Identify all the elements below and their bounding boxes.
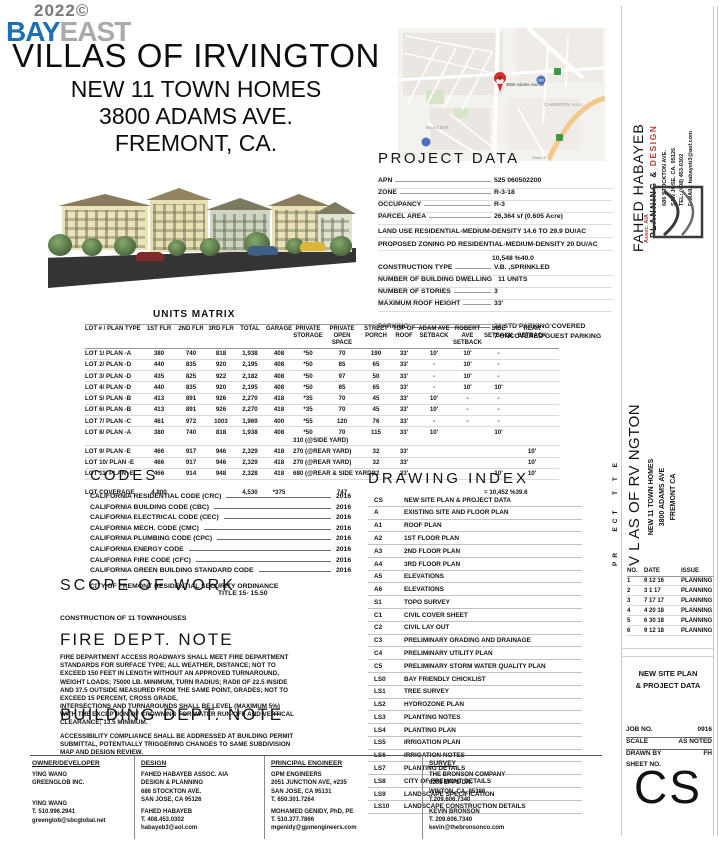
cell: 33' xyxy=(391,418,417,426)
leader-line xyxy=(454,291,491,293)
field-label: CONSTRUCTION TYPE xyxy=(378,264,452,271)
leader-line xyxy=(189,550,331,551)
info-row: SCALE AS NOTED xyxy=(626,738,712,750)
cell: *50 xyxy=(293,373,323,381)
field-label: ZONE xyxy=(378,189,397,196)
units-matrix-row: LOT 9/ PLAN -E 466 917 946 2,329 418 270… xyxy=(85,446,559,457)
code-name: CALIFORNIA FIRE CODE (CFC) xyxy=(90,557,191,564)
field-label: MAXIMUM ROOF HEIGHT xyxy=(378,300,460,307)
cell: 45 xyxy=(361,395,391,403)
sheet-name: PRELIMINARY GRADING AND DRAINAGE xyxy=(404,637,582,644)
fire-note-heading: FIRE DEPT. NOTE xyxy=(60,630,365,650)
car-graphic xyxy=(136,252,164,261)
code-year: 2016 xyxy=(336,493,362,500)
project-data-row: NUMBER OF STORIES 3 xyxy=(378,288,612,300)
cell: 115 xyxy=(361,429,391,437)
code-year: 2016 xyxy=(336,535,362,542)
cell: - xyxy=(484,373,513,381)
units-matrix-row: LOT 4/ PLAN -D 440 835 920 2,195 408 *50… xyxy=(85,382,559,393)
contact-role: SURVEY xyxy=(429,760,596,767)
leader-line xyxy=(224,518,331,519)
column-header: TOP OF ROOF xyxy=(391,326,417,347)
field-value: 3 xyxy=(494,288,612,295)
cell: 2,195 xyxy=(235,361,265,369)
info-value: AS NOTED xyxy=(678,738,712,745)
cell: 972 xyxy=(175,418,207,426)
sheet-name: IRRIGATION PLAN xyxy=(404,739,582,746)
rev-issue: PLANNING xyxy=(681,588,713,594)
cell: 740 xyxy=(175,429,207,437)
contact-column: DESIGN FAHED HABAYEB ASSOC. AIA DESIGN &… xyxy=(134,756,264,839)
cell: - xyxy=(484,418,513,426)
cell: 10' xyxy=(451,373,484,381)
field-label: OCCUPANCY xyxy=(378,201,421,208)
rev-issue: PLANNING xyxy=(681,618,713,624)
rev-no: 4 xyxy=(627,608,644,614)
titleblock-project-name: V L AS OF RV NGTON xyxy=(626,416,643,566)
rev-issue: PLANNING xyxy=(681,578,713,584)
map-highway-shield xyxy=(422,138,431,147)
scope-body: CONSTRUCTION OF 11 TOWNHOUSES xyxy=(60,615,360,622)
cell: 97 xyxy=(323,373,361,381)
field-value: 11 UNITS xyxy=(498,276,612,283)
cell: - xyxy=(417,373,451,381)
contact-firm: YING WANG GREENGLOB INC. xyxy=(32,771,128,797)
drawing-index-row: A1 ROOF PLAN xyxy=(368,520,582,533)
drawing-index-row: LS2 HYDROZONE PLAN xyxy=(368,699,582,712)
drawing-index-row: A6 ELEVATIONS xyxy=(368,583,582,596)
cell: 33' xyxy=(391,459,417,467)
code-year: 2016 xyxy=(336,504,362,511)
cell: 408 xyxy=(265,373,293,381)
drawing-index-row: C3 PRELIMINARY GRADING AND DRAINAGE xyxy=(368,635,582,648)
cell: 45 xyxy=(361,406,391,414)
codes-heading: CODES xyxy=(90,467,362,484)
revision-row: 3 7 17 17 PLANNING xyxy=(627,596,713,606)
cell: 120 xyxy=(323,418,361,426)
rev-issue: PLANNING xyxy=(681,598,713,604)
cell: 32 xyxy=(361,448,391,456)
drawing-index-row: LS0 BAY FRIENDLY CHICKLIST xyxy=(368,673,582,686)
project-data-row: MAXIMUM ROOF HEIGHT 33' xyxy=(378,300,612,312)
drawing-index-row: LS1 TREE SURVEY xyxy=(368,686,582,699)
revision-row: 4 4 20 18 PLANNING xyxy=(627,606,713,616)
cell: 835 xyxy=(175,384,207,392)
cell: 33' xyxy=(391,361,417,369)
sheet-code: C5 xyxy=(368,663,404,670)
cell: 10' xyxy=(417,429,451,437)
designer-tagline-accent: DESIGN xyxy=(648,125,658,167)
units-matrix-heading: UNITS MATRIX xyxy=(153,309,235,320)
tree-graphic xyxy=(114,236,136,256)
code-row: CALIFORNIA MECH. CODE (CMC) 2016 xyxy=(90,525,362,536)
cell: 1,969 xyxy=(235,418,265,426)
project-title-label: PR ECT T T E xyxy=(612,416,619,566)
units-matrix-row: LOT 1/ PLAN -A 380 740 818 1,938 408 *50… xyxy=(85,349,559,360)
column-header: STREET PORCH xyxy=(361,326,391,347)
sheet-code: C2 xyxy=(368,624,404,631)
project-data-row: APN 525 060502200 xyxy=(378,177,612,189)
sheet-code: LS4 xyxy=(368,727,404,734)
cell: 946 xyxy=(207,459,235,467)
cell: 466 xyxy=(143,459,175,467)
sheet-name: ROOF PLAN xyxy=(404,522,582,529)
cell: 408 xyxy=(265,361,293,369)
cell: - xyxy=(484,361,513,369)
map-graphic: 680 3800 Adams Avenue CAMERON HILL BLACO… xyxy=(398,28,605,161)
field-value: 33' xyxy=(494,300,612,307)
leader-line xyxy=(226,497,331,498)
code-row: CALIFORNIA RESIDENTIAL CODE (CRC) 2016 xyxy=(90,493,362,504)
cell: 270 (@REAR YARD) xyxy=(293,448,323,456)
sheet-name: ELEVATIONS xyxy=(404,573,582,580)
cell: 85 xyxy=(323,384,361,392)
cell: 33' xyxy=(391,395,417,403)
cell: *35 xyxy=(293,395,323,403)
code-name: CALIFORNIA GREEN BUILDING STANDARD CODE xyxy=(90,567,254,574)
sheet-name: PRELIMINARY UTILITY PLAN xyxy=(404,650,582,657)
cell: - xyxy=(484,395,513,403)
sheet-name: TREE SURVEY xyxy=(404,688,582,695)
units-matrix-row: LOT 6/ PLAN -B 413 891 926 2,270 418 *35… xyxy=(85,405,559,416)
cell: 65 xyxy=(361,361,391,369)
cell-lot: LOT 10/ PLAN -E xyxy=(85,459,143,467)
leader-line xyxy=(395,180,491,182)
leader-line xyxy=(400,192,491,194)
column-header: PRIVATE STORAGE xyxy=(293,326,323,347)
cell: 408 xyxy=(265,429,293,437)
land-use-line: LAND USE RESIDENTIAL-MEDIUM-DENSITY 14.6… xyxy=(378,225,612,238)
cell: 10' xyxy=(417,350,451,358)
titleblock-project: PR ECT T T E V L AS OF RV NGTON NEW 11 T… xyxy=(612,416,694,566)
drawing-index-row: A EXISTING SITE AND FLOOR PLAN xyxy=(368,507,582,520)
field-value: R-3 xyxy=(494,201,612,208)
revision-table: NO. DATE ISSUE 1 9 12 16 PLANNING 2 3 1 … xyxy=(627,568,713,636)
rev-date: 9 12 16 xyxy=(644,578,681,584)
info-label: SCALE xyxy=(626,738,648,745)
drawing-index-row: S1 TOPO SURVEY xyxy=(368,596,582,609)
rev-no: 6 xyxy=(627,628,644,634)
cell: 891 xyxy=(175,406,207,414)
cell: *50 xyxy=(293,350,323,358)
leader-line xyxy=(217,539,331,540)
cell: 740 xyxy=(175,350,207,358)
cell: 2,270 xyxy=(235,395,265,403)
info-value: 0916 xyxy=(698,726,712,733)
cell: - xyxy=(451,418,484,426)
revision-row: 1 9 12 16 PLANNING xyxy=(627,577,713,587)
cell: 10' xyxy=(513,448,551,456)
cell: 10' xyxy=(417,395,451,403)
drawing-index-row: A4 3RD FLOOR PLAN xyxy=(368,558,582,571)
building-note-body: ACCESSIBILITY COMPLIANCE SHALL BE ADDRES… xyxy=(60,733,365,758)
rev-no: 5 xyxy=(627,618,644,624)
code-row: CALIFORNIA BUILDING CODE (CBC) 2016 xyxy=(90,504,362,515)
sheet-code: A5 xyxy=(368,573,404,580)
cell-lot: LOT 6/ PLAN -B xyxy=(85,406,143,414)
code-row: CALIFORNIA FIRE CODE (CFC) 2016 xyxy=(90,557,362,568)
code-name: CALIFORNIA BUILDING CODE (CBC) xyxy=(90,504,209,511)
cell: 380 xyxy=(143,429,175,437)
sheet-name: PRELIMINARY STORM WATER QUALITY PLAN xyxy=(404,663,582,670)
rev-no: 1 xyxy=(627,578,644,584)
cell: 2,329 xyxy=(235,459,265,467)
map-label-cameron-hill: CAMERON HILL xyxy=(544,102,584,107)
cell: 33' xyxy=(391,429,417,437)
cell: 818 xyxy=(207,350,235,358)
column-header: REAR SETBACK xyxy=(513,326,551,347)
field-label: NUMBER OF STORIES xyxy=(378,288,451,295)
cell: 408 xyxy=(265,384,293,392)
map-pin-label: 3800 Adams Avenue xyxy=(506,82,545,87)
cell: 270 (@REAR YARD) xyxy=(293,459,323,467)
leader-line xyxy=(429,216,491,218)
column-header: ROBERT AVE SETBACK xyxy=(451,326,484,347)
code-name: CALIFORNIA MECH. CODE (CMC) xyxy=(90,525,199,532)
column-header: 3RD FLR xyxy=(207,326,235,347)
cell: 10' xyxy=(484,429,513,437)
sheet-code: A3 xyxy=(368,548,404,555)
cell: 440 xyxy=(143,384,175,392)
cell: 926 xyxy=(207,406,235,414)
map-green-badge xyxy=(556,134,563,141)
sheet-code: A xyxy=(368,509,404,516)
cell: 70 xyxy=(323,406,361,414)
code-row: CALIFORNIA ELECTRICAL CODE (CEC) 2016 xyxy=(90,514,362,525)
rev-no: 2 xyxy=(627,588,644,594)
rev-no: 3 xyxy=(627,598,644,604)
rev-col-issue: ISSUE xyxy=(681,568,713,574)
leader-line xyxy=(455,267,491,269)
sheet-code: LS2 xyxy=(368,701,404,708)
cell: 2,270 xyxy=(235,406,265,414)
sheet-name: 3RD FLOOR PLAN xyxy=(404,561,582,568)
column-header: GARAGE xyxy=(265,326,293,347)
drawing-index-row: A5 ELEVATIONS xyxy=(368,571,582,584)
sheet-name: CIVIL LAY OUT xyxy=(404,624,582,631)
tree-graphic xyxy=(200,238,220,256)
cell: 400 xyxy=(265,418,293,426)
cell: 440 xyxy=(143,361,175,369)
cell: 891 xyxy=(175,395,207,403)
contact-role: PRINCIPAL ENGINEER xyxy=(271,760,416,767)
cell: 920 xyxy=(207,384,235,392)
drawing-index-row: LS5 IRRIGATION PLAN xyxy=(368,737,582,750)
cell: 920 xyxy=(207,361,235,369)
sheet-name: PLANTING PLAN xyxy=(404,727,582,734)
contacts-table: OWNER/DEVELOPER YING WANG GREENGLOB INC.… xyxy=(30,755,602,839)
column-header: 1ST FLR xyxy=(143,326,175,347)
cell-lot: LOT 1/ PLAN -A xyxy=(85,350,143,358)
cell: 835 xyxy=(175,361,207,369)
sheet-edge-border xyxy=(717,6,718,836)
contact-role: OWNER/DEVELOPER xyxy=(32,760,128,767)
code-name: CALIFORNIA RESIDENTIAL CODE (CRC) xyxy=(90,493,221,500)
code-row: CALIFORNIA ENERGY CODE 2016 xyxy=(90,546,362,557)
column-header: 2ND FLR xyxy=(175,326,207,347)
info-label: DRAWN BY xyxy=(626,750,661,757)
cell: 10' xyxy=(451,384,484,392)
code-row: CALIFORNIA PLUMBING CODE (CPC) 2016 xyxy=(90,535,362,546)
cell: *55 xyxy=(293,418,323,426)
cell: 408 xyxy=(265,350,293,358)
sheet-code: A4 xyxy=(368,561,404,568)
sheet-number: CS xyxy=(622,760,714,814)
building-dept-note-section: BUILDING DEPT. NOTE ACCESSIBILITY COMPLI… xyxy=(60,705,365,758)
tree-graphic xyxy=(82,238,102,256)
leader-line xyxy=(196,561,331,562)
project-data-row: OCCUPANCY R-3 xyxy=(378,201,612,213)
scope-heading: SCOPE OF WORK xyxy=(60,577,360,595)
rev-date: 6 30 18 xyxy=(644,618,681,624)
cell: *35 xyxy=(293,406,323,414)
field-value: R-3-18 xyxy=(494,189,612,196)
cell-lot: LOT 4/ PLAN -D xyxy=(85,384,143,392)
cell: 33' xyxy=(391,406,417,414)
cover-sheet: 2022© BAYEAST VILLAS OF IRVINGTON NEW 11… xyxy=(0,0,720,843)
cell: - xyxy=(417,384,451,392)
cell: 10' xyxy=(417,406,451,414)
cell: 33' xyxy=(391,448,417,456)
project-data-heading: PROJECT DATA xyxy=(378,150,612,167)
field-label: APN xyxy=(378,177,392,184)
cell: 2,329 xyxy=(235,448,265,456)
cell: 435 xyxy=(143,373,175,381)
cell: 65 xyxy=(361,384,391,392)
cell: 926 xyxy=(207,395,235,403)
contact-person: KEVIN BRONSON T. 209.606.7340 kevin@theb… xyxy=(429,808,596,833)
sheet-name: NEW SITE PLAN & PROJECT DATA xyxy=(404,497,582,504)
cell-lot: LOT 2/ PLAN -D xyxy=(85,361,143,369)
contact-column: OWNER/DEVELOPER YING WANG GREENGLOB INC.… xyxy=(30,756,134,839)
cell: 10' xyxy=(451,361,484,369)
column-header: TOTAL xyxy=(235,326,265,347)
rev-issue: PLANNING xyxy=(681,608,713,614)
units-matrix-row: LOT 8/ PLAN -A 380 740 818 1,938 408 *50… xyxy=(85,427,559,446)
field-label: NUMBER OF BUILDING DWELLING xyxy=(378,276,492,283)
cell: 461 xyxy=(143,418,175,426)
units-matrix-row: LOT 2/ PLAN -D 440 835 920 2,195 408 *50… xyxy=(85,360,559,371)
project-data-row: NUMBER OF BUILDING DWELLING 11 UNITS xyxy=(378,276,612,288)
building-rendering xyxy=(48,186,356,288)
car-graphic xyxy=(300,242,326,251)
sheet-name: BAY FRIENDLY CHICKLIST xyxy=(404,676,582,683)
tree-graphic xyxy=(168,240,186,256)
cell: - xyxy=(484,406,513,414)
contact-person: MOHAMED GENIDY, PhD, PE T. 510.377.7866 … xyxy=(271,808,416,833)
cell: 1003 xyxy=(207,418,235,426)
cell: 70 xyxy=(323,350,361,358)
rev-date: 4 20 18 xyxy=(644,608,681,614)
project-subtitle: NEW 11 TOWN HOMES xyxy=(0,76,392,103)
cell: - xyxy=(417,361,451,369)
cell: 917 xyxy=(175,459,207,467)
cell: 33' xyxy=(391,384,417,392)
cell: *50 xyxy=(293,361,323,369)
cell: 70 xyxy=(323,429,361,437)
contact-role: DESIGN xyxy=(141,760,258,767)
project-name: VILLAS OF IRVINGTON xyxy=(0,36,392,76)
sheet-code: CS xyxy=(368,497,404,504)
project-data-row: CONSTRUCTION TYPE V.B. ,SPRINKLED xyxy=(378,264,612,276)
cell: 10' xyxy=(484,384,513,392)
drawing-index-row: C5 PRELIMINARY STORM WATER QUALITY PLAN xyxy=(368,660,582,673)
drawing-index-row: A2 1ST FLOOR PLAN xyxy=(368,532,582,545)
rev-date: 9 12 18 xyxy=(644,628,681,634)
contact-person: YING WANG T. 510.996.2941 greenglob@sbcg… xyxy=(32,800,128,825)
sheet-code: A2 xyxy=(368,535,404,542)
sheet-code: C4 xyxy=(368,650,404,657)
code-name: CALIFORNIA ELECTRICAL CODE (CEC) xyxy=(90,514,219,521)
tree-graphic xyxy=(48,234,72,256)
revision-row: 2 3 1 17 PLANNING xyxy=(627,586,713,596)
cell: 70 xyxy=(323,395,361,403)
titleblock-project-address: NEW 11 TOWN HOMES 3800 ADAMS AVE FREMONT… xyxy=(646,438,680,556)
contact-person: FAHED HABAYEB T. 408.453.0302 habayeb3@a… xyxy=(141,808,258,833)
cell: *50 xyxy=(293,384,323,392)
cell: 946 xyxy=(207,448,235,456)
map-label-blacow: BLACOW xyxy=(426,125,449,130)
car-graphic xyxy=(248,246,278,255)
drawing-index-row: C2 CIVIL LAY OUT xyxy=(368,622,582,635)
field-value: V.B. ,SPRINKLED xyxy=(494,264,612,271)
units-matrix-row: LOT 7/ PLAN -C 461 972 1003 1,969 400 *5… xyxy=(85,416,559,427)
cell: 1,938 xyxy=(235,350,265,358)
cell: 190 xyxy=(361,350,391,358)
column-header: PRIVATE OPEN SPACE xyxy=(323,326,361,347)
cell-lot: LOT 5/ PLAN -B xyxy=(85,395,143,403)
cell-lot: LOT 7/ PLAN -C xyxy=(85,418,143,426)
sheet-code: LS5 xyxy=(368,739,404,746)
building-note-heading: BUILDING DEPT. NOTE xyxy=(60,705,365,725)
cell: 413 xyxy=(143,406,175,414)
field-value: 26,364 sf (0.605 Acre) xyxy=(494,213,612,220)
rev-date: 3 1 17 xyxy=(644,588,681,594)
leader-line xyxy=(259,571,332,572)
rev-col-date: DATE xyxy=(644,568,681,574)
cell: 33' xyxy=(391,373,417,381)
cell: 380 xyxy=(143,350,175,358)
project-data-section: PROJECT DATA APN 525 060502200 ZONE R-3-… xyxy=(378,150,612,342)
code-name: CALIFORNIA ENERGY CODE xyxy=(90,546,184,553)
leader-line xyxy=(204,529,331,530)
sheet-code: LS1 xyxy=(368,688,404,695)
code-year: 2016 xyxy=(336,546,362,553)
titleblock-divider xyxy=(622,656,714,657)
cell: 917 xyxy=(175,448,207,456)
sheet-code: A6 xyxy=(368,586,404,593)
sheet-name: PLANTING NOTES xyxy=(404,714,582,721)
cell: 10' xyxy=(451,350,484,358)
project-data-row: PARCEL AREA 26,364 sf (0.605 Acre) xyxy=(378,213,612,225)
cell: - xyxy=(451,395,484,403)
cell: 922 xyxy=(207,373,235,381)
revision-header: NO. DATE ISSUE xyxy=(627,568,713,577)
cell-lot: LOT 8/ PLAN -A xyxy=(85,429,143,437)
field-value: 525 060502200 xyxy=(494,177,612,184)
drawing-index-row: LS3 PLANTING NOTES xyxy=(368,711,582,724)
cell-lot: LOT 9/ PLAN -E xyxy=(85,448,143,456)
coverage-value: 10,548 %40.0 xyxy=(378,251,612,264)
cell: *50 310 (@SIDE YARD) xyxy=(293,429,323,445)
project-data-row: ZONE R-3-18 xyxy=(378,189,612,201)
column-header: ADAM AVE SETBACK xyxy=(417,326,451,347)
cell: 2,195 xyxy=(235,384,265,392)
sheet-name: 1ST FLOOR PLAN xyxy=(404,535,582,542)
cell: 466 xyxy=(143,448,175,456)
info-value: FH xyxy=(703,750,712,757)
cell: 85 xyxy=(323,361,361,369)
